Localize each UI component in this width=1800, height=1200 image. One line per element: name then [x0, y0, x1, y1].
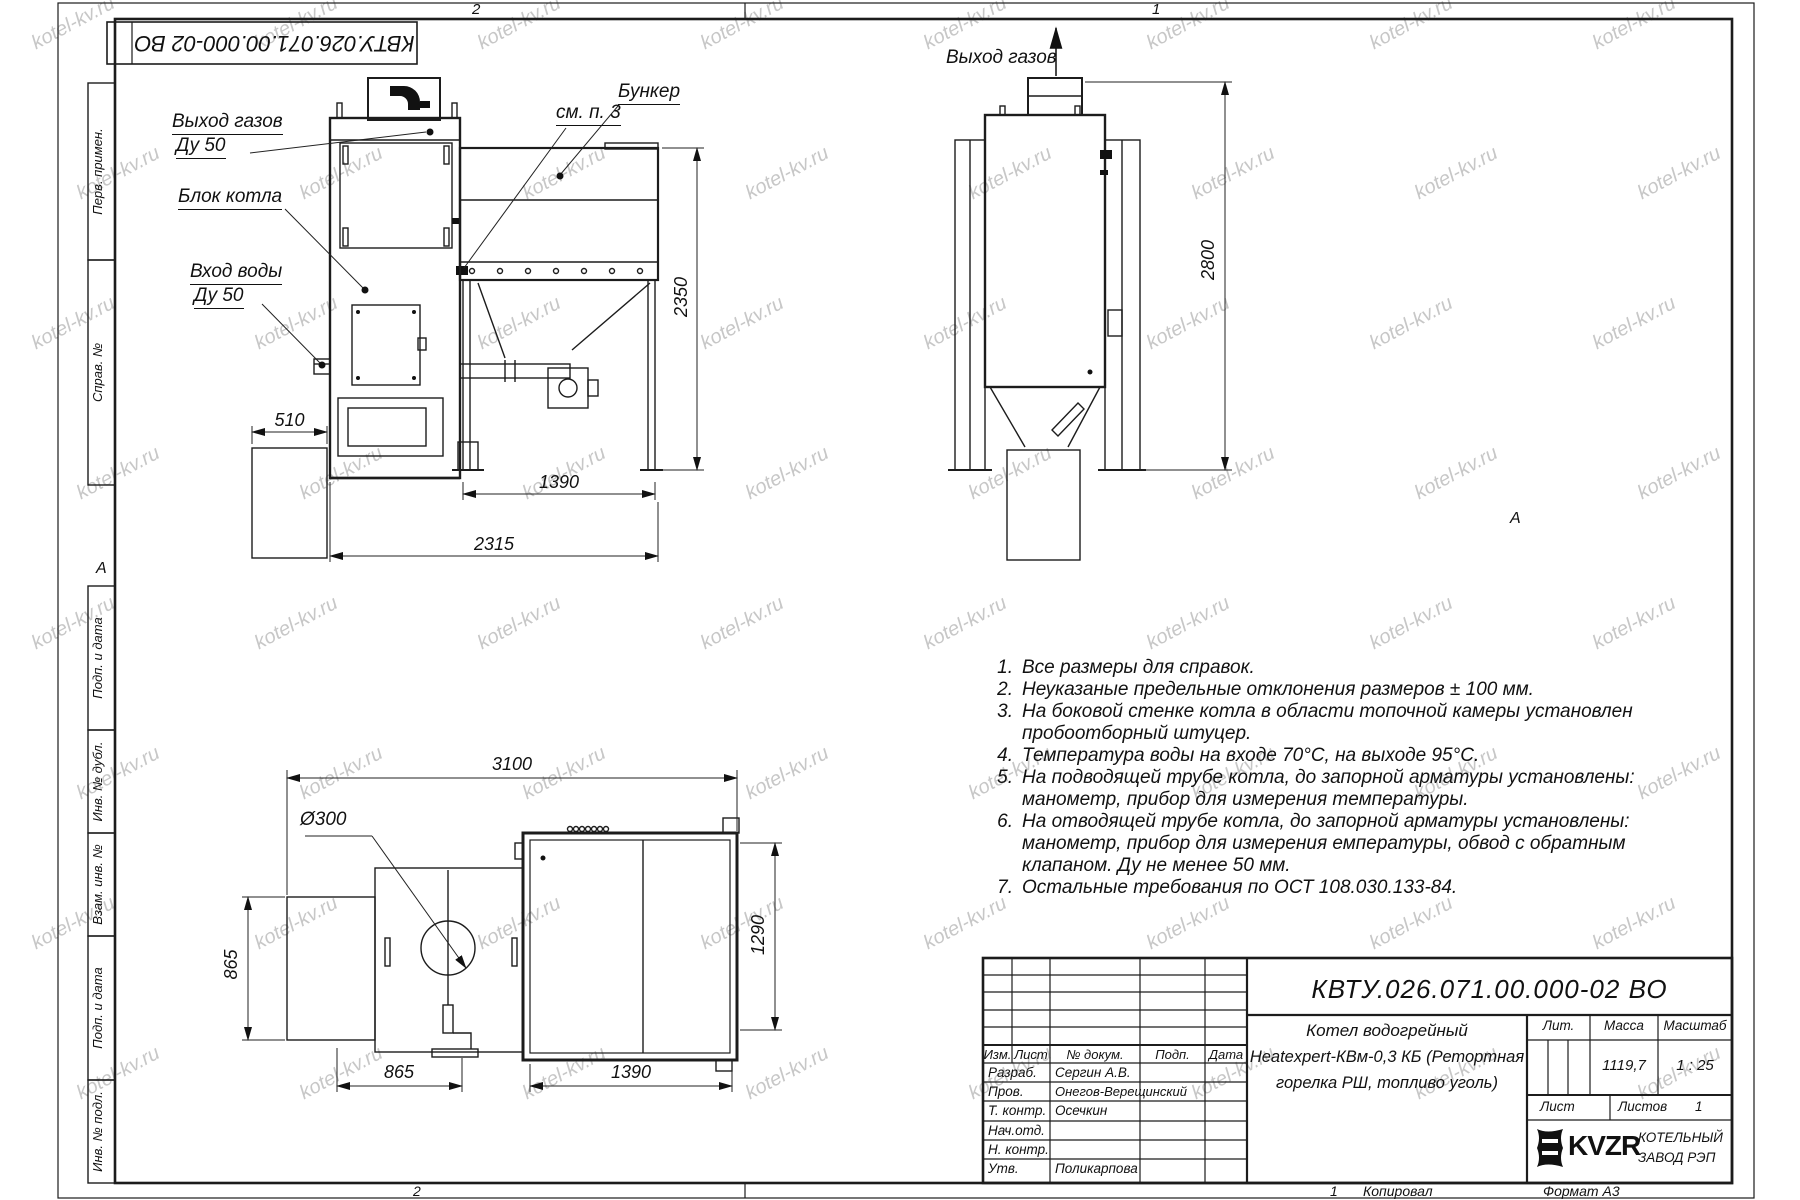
zone-marker-right: А	[1510, 510, 1521, 528]
stamp-vzam-inv: Взам. инв. №	[91, 833, 105, 936]
label-gas-out-dn: Ду 50	[176, 136, 226, 159]
row-role: Пров.	[988, 1085, 1024, 1100]
dim-2350: 2350	[672, 222, 692, 372]
note-number: 2.	[985, 680, 1013, 701]
col-data: Дата	[1205, 1048, 1247, 1062]
stamp-inv-dubl: Инв. № дубл.	[91, 730, 105, 833]
front-view	[252, 78, 663, 558]
dim-865-bottom: 865	[369, 1063, 429, 1083]
sheet-frame	[58, 3, 1754, 1198]
lit-label: Лит.	[1527, 1019, 1590, 1034]
note-text: пробоотборный штуцер.	[1022, 724, 1251, 745]
note-number: 4.	[985, 746, 1013, 767]
stamp-podp-data-1: Подп. и дата	[91, 586, 105, 730]
note-text: Все размеры для справок.	[1022, 658, 1255, 679]
label-water-in: Вход воды	[190, 262, 282, 285]
note-text: клапаном. Ду не менее 50 мм.	[1022, 856, 1291, 877]
row-role: Н. контр.	[988, 1143, 1049, 1158]
col-izm: Изм.	[983, 1048, 1012, 1062]
col-list: Лист	[1012, 1048, 1050, 1062]
company-name-line1: КОТЕЛЬНЫЙ	[1638, 1131, 1723, 1146]
note-text: Температура воды на входе 70°С, на выход…	[1022, 746, 1479, 767]
label-boiler-block: Блок котла	[178, 187, 282, 210]
copied-label: Копировал	[1363, 1184, 1433, 1199]
product-name-line3: горелка РШ, топливо уголь)	[1247, 1074, 1527, 1092]
mass-value: 1119,7	[1590, 1058, 1658, 1075]
sheet-label: Лист	[1540, 1100, 1575, 1115]
dim-865-left: 865	[222, 897, 242, 1032]
row-role: Утв.	[988, 1162, 1019, 1177]
note-text: На боковой стенке котла в области топочн…	[1022, 702, 1633, 723]
drawing-sheet: kotel-kv.rukotel-kv.rukotel-kv.rukotel-k…	[0, 0, 1800, 1200]
row-role: Разраб.	[988, 1066, 1037, 1081]
zone-top-left: 2	[472, 2, 480, 19]
scale-value: 1 : 25	[1658, 1058, 1732, 1075]
note-number: 5.	[985, 768, 1013, 789]
dim-510: 510	[262, 411, 317, 431]
row-role: Т. контр.	[988, 1104, 1046, 1119]
plan-view	[287, 818, 739, 1071]
product-name-line2: Heatexpert-КВм-0,3 КБ (Ретортная	[1247, 1048, 1527, 1066]
dim-1390-front: 1390	[529, 473, 589, 493]
zone-top-right: 1	[1152, 2, 1160, 19]
zone-bottom-right: 1	[1330, 1184, 1338, 1199]
label-gas-out: Выход газов	[172, 112, 283, 135]
side-view	[948, 28, 1146, 560]
kvzr-logo-icon	[1534, 1127, 1566, 1169]
row-name: Онегов-Верещинский	[1055, 1085, 1187, 1099]
note-text: манометр, прибор для измерения температу…	[1022, 790, 1469, 811]
note-number: 3.	[985, 702, 1013, 723]
dim-d300: Ø300	[300, 810, 346, 831]
zone-marker-left: А	[96, 560, 107, 578]
col-podp: Подп.	[1140, 1048, 1205, 1062]
front-view-dims	[250, 106, 704, 562]
note-text: На подводящей трубе котла, до запорной а…	[1022, 768, 1635, 789]
company-name-line2: ЗАВОД РЭП	[1638, 1151, 1715, 1166]
row-name: Осечкин	[1055, 1104, 1107, 1119]
dim-1390-plan: 1390	[601, 1063, 661, 1083]
note-text: Неуказаные предельные отклонения размеро…	[1022, 680, 1534, 701]
stamp-perv-primen: Перв. примен.	[91, 83, 105, 260]
stamp-sprav-no: Справ. №	[91, 260, 105, 485]
note-text: Остальные требования по ОСТ 108.030.133-…	[1022, 878, 1457, 899]
label-gas-out-side: Выход газов	[946, 48, 1057, 69]
scale-label: Масштаб	[1658, 1019, 1732, 1034]
doc-number-top: КВТУ.026.071.00.000-02 ВО	[132, 24, 417, 62]
note-text: манометр, прибор для измерения емператур…	[1022, 834, 1626, 855]
zone-bottom-left: 2	[413, 1184, 421, 1199]
sheets-label: Листов	[1618, 1100, 1667, 1115]
label-see-note-3: см. п. 3	[556, 103, 621, 126]
mass-label: Масса	[1590, 1019, 1658, 1034]
label-water-in-dn: Ду 50	[194, 286, 244, 309]
dim-2800: 2800	[1199, 185, 1219, 335]
sheets-value: 1	[1695, 1100, 1703, 1115]
note-number: 1.	[985, 658, 1013, 679]
row-name: Поликарпова	[1055, 1162, 1138, 1177]
label-bunker: Бункер	[618, 82, 680, 105]
format-label: Формат А3	[1543, 1184, 1620, 1199]
product-name-line1: Котел водогрейный	[1247, 1022, 1527, 1041]
dim-3100: 3100	[482, 755, 542, 775]
dim-1290: 1290	[749, 870, 769, 1000]
note-text: На отводящей трубе котла, до запорной ар…	[1022, 812, 1630, 833]
row-role: Нач.отд.	[988, 1124, 1045, 1139]
stamp-inv-podl: Инв. № подл.	[91, 1080, 105, 1183]
title-doc-number: КВТУ.026.071.00.000-02 ВО	[1247, 966, 1732, 1012]
row-name: Сергин А.В.	[1055, 1066, 1131, 1081]
note-number: 6.	[985, 812, 1013, 833]
kvzr-logo-text: KVZR	[1568, 1130, 1640, 1162]
stamp-podp-data-2: Подп. и дата	[91, 936, 105, 1080]
dim-2315: 2315	[464, 535, 524, 555]
note-number: 7.	[985, 878, 1013, 899]
col-docnum: № докум.	[1050, 1048, 1140, 1062]
